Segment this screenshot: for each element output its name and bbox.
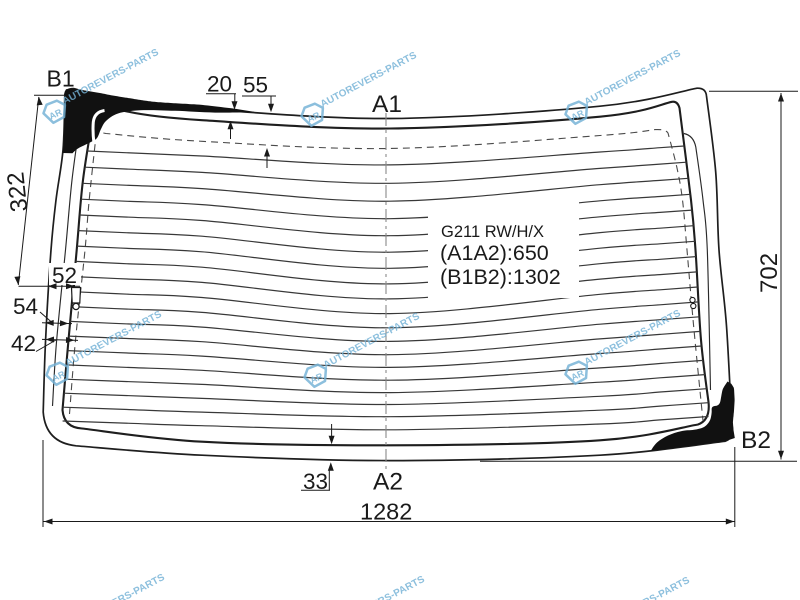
svg-text:A2: A2 [373, 469, 403, 496]
svg-text:55: 55 [243, 73, 268, 98]
svg-text:1282: 1282 [360, 499, 412, 525]
svg-text:(A1A2):650: (A1A2):650 [440, 241, 549, 265]
svg-text:(B1B2):1302: (B1B2):1302 [440, 265, 561, 289]
svg-text:702: 702 [756, 253, 783, 293]
svg-text:A1: A1 [372, 91, 402, 118]
svg-text:B1: B1 [47, 66, 75, 92]
svg-text:54: 54 [13, 294, 38, 319]
svg-text:20: 20 [207, 72, 232, 97]
svg-text:G211 RW/H/X: G211 RW/H/X [441, 223, 544, 241]
svg-text:322: 322 [2, 171, 33, 214]
svg-text:B2: B2 [741, 427, 771, 454]
svg-text:42: 42 [11, 331, 36, 356]
